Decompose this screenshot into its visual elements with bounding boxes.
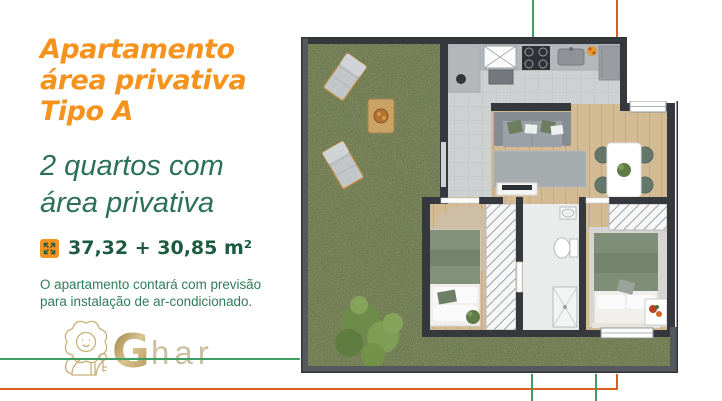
page-subtitle-line-2: área privativa	[40, 185, 295, 222]
area-dimensions-icon	[40, 239, 59, 258]
guide-line-orange-bottom-riser	[616, 374, 618, 390]
kettle	[456, 74, 466, 84]
kitchen-sink	[558, 47, 584, 65]
sofa	[494, 112, 571, 147]
area-value: 37,32 + 30,85 m²	[68, 237, 252, 259]
guide-line-green-bottom-vertical-2	[595, 374, 597, 401]
page-subtitle: 2 quartos com área privativa	[40, 148, 295, 222]
area-row: 37,32 + 30,85 m²	[40, 237, 295, 259]
brand-wordmark-g: G	[112, 324, 150, 378]
ac-note-line-2: para instalação de ar-condicionado.	[40, 293, 295, 310]
entry-tile-floor	[448, 104, 491, 197]
guide-line-green-top-vertical	[532, 0, 534, 37]
laundry-tank	[484, 46, 516, 84]
floorplan-image	[301, 37, 678, 373]
tv-console	[497, 183, 537, 195]
ac-note: O apartamento contará com previsão para …	[40, 276, 295, 310]
page-title-line-2: área privativa	[40, 65, 295, 96]
lion-with-key-icon	[65, 321, 106, 375]
ac-note-line-1: O apartamento contará com previsão	[40, 276, 295, 293]
living-rug	[494, 151, 586, 187]
left-panel: Apartamento área privativa Tipo A 2 quar…	[40, 34, 295, 383]
guide-line-orange-bottom	[0, 388, 618, 390]
guide-line-orange-top-vertical	[616, 0, 618, 37]
stove	[522, 46, 550, 70]
guide-line-green-bottom-vertical-1	[531, 374, 533, 401]
page-subtitle-line-1: 2 quartos com	[40, 148, 295, 185]
decor-flowers	[645, 299, 667, 325]
page-title: Apartamento área privativa Tipo A	[40, 34, 295, 127]
flyer-page: Apartamento área privativa Tipo A 2 quar…	[0, 0, 722, 401]
wardrobe-bedroom-1	[486, 204, 516, 330]
potted-plant	[466, 310, 480, 324]
guide-line-green-under-logo	[0, 358, 300, 360]
brand-wordmark-har: har	[151, 334, 214, 371]
fridge	[599, 46, 620, 80]
page-title-line-3: Tipo A	[40, 96, 295, 127]
patio-glass-door	[441, 142, 446, 187]
page-title-line-1: Apartamento	[40, 34, 295, 65]
background-cutout	[627, 37, 678, 101]
brand-logo: G har	[50, 314, 295, 383]
garden-table	[368, 99, 394, 133]
wardrobe-master	[609, 204, 667, 230]
flower-vase	[587, 46, 597, 56]
